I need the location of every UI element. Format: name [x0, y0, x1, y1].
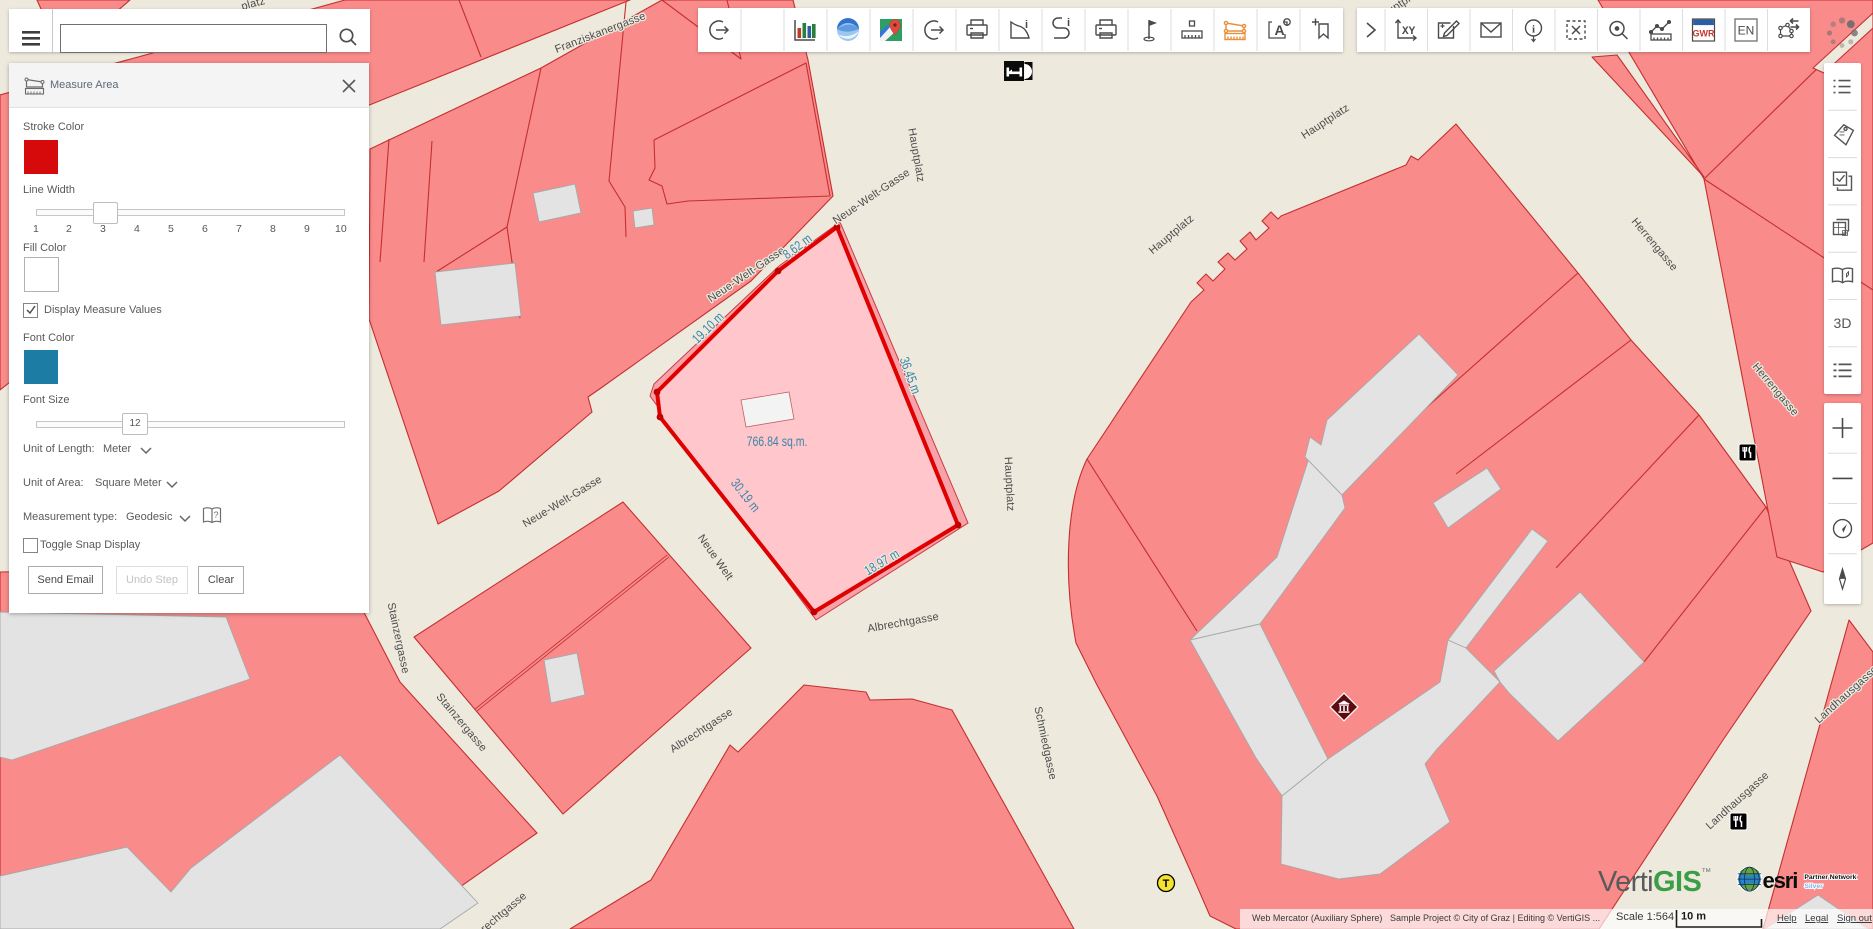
svg-text:766.84 sq.m.: 766.84 sq.m. — [747, 434, 808, 450]
svg-text:10 m: 10 m — [1681, 911, 1706, 923]
svg-text:XY: XY — [1402, 26, 1416, 38]
svg-text:esri: esri — [1762, 868, 1797, 893]
svg-text:i: i — [1532, 24, 1535, 36]
svg-text:i: i — [1067, 17, 1070, 29]
svg-text:T: T — [1163, 878, 1170, 890]
svg-text:Silver: Silver — [1804, 883, 1823, 890]
svg-text:A: A — [1275, 22, 1285, 38]
svg-text:3D: 3D — [1834, 315, 1852, 331]
svg-text:Partner Network: Partner Network — [1804, 874, 1856, 881]
svg-text:?: ? — [213, 510, 218, 520]
svg-text:EN: EN — [1738, 24, 1755, 38]
svg-text:GWR: GWR — [1693, 29, 1715, 39]
svg-text:i: i — [1025, 19, 1028, 31]
